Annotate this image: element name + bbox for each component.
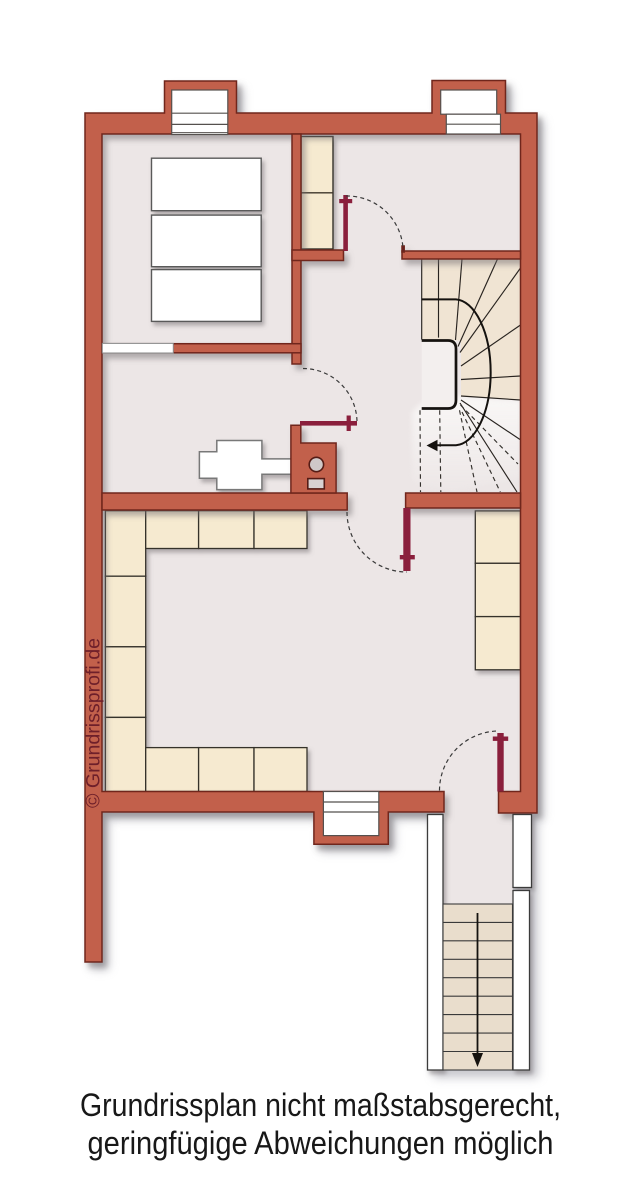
svg-text:Grundrissplan nicht maßstabsge: Grundrissplan nicht maßstabsgerecht, [80,1087,561,1123]
svg-text:© Grundrissprofi.de: © Grundrissprofi.de [84,638,105,808]
svg-text:geringfügige Abweichungen mögl: geringfügige Abweichungen möglich [88,1125,554,1161]
